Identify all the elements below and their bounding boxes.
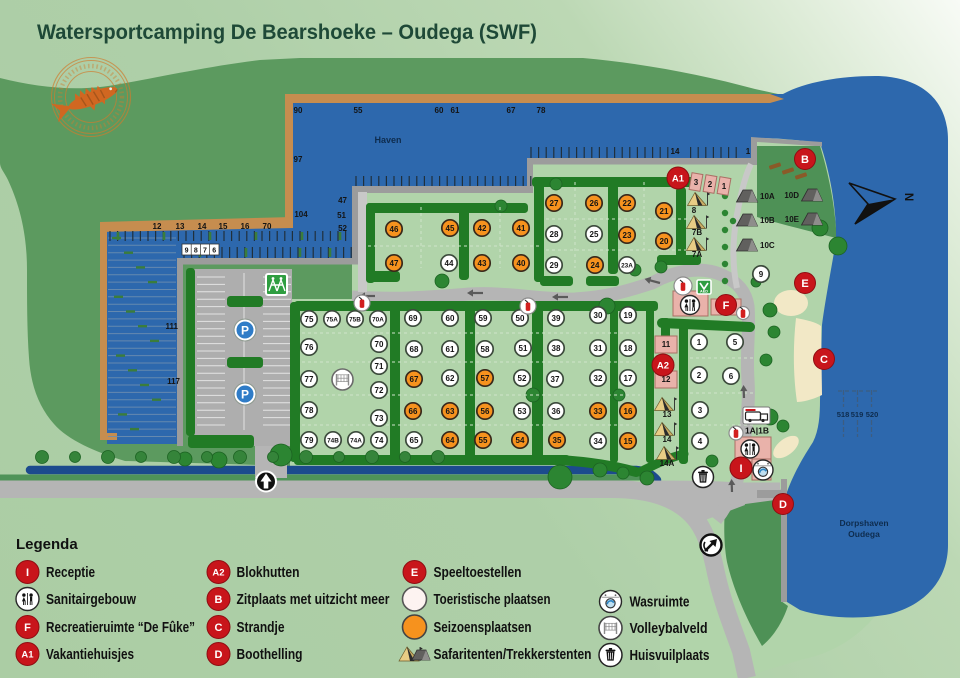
svg-text:61: 61 xyxy=(446,345,455,354)
svg-text:2: 2 xyxy=(697,371,702,380)
svg-text:P: P xyxy=(241,323,249,337)
svg-text:63: 63 xyxy=(446,407,455,416)
svg-text:F: F xyxy=(24,622,31,634)
svg-text:520: 520 xyxy=(866,410,879,419)
svg-text:67: 67 xyxy=(410,375,419,384)
svg-text:79: 79 xyxy=(305,436,314,445)
svg-text:52: 52 xyxy=(338,224,347,233)
svg-text:17: 17 xyxy=(624,374,633,383)
svg-text:38: 38 xyxy=(552,344,561,353)
svg-text:Safaritenten/Trekkerstenten: Safaritenten/Trekkerstenten xyxy=(434,646,592,663)
svg-text:24: 24 xyxy=(591,261,600,270)
svg-text:22: 22 xyxy=(623,199,632,208)
svg-text:20: 20 xyxy=(660,237,669,246)
svg-text:B: B xyxy=(215,594,223,606)
svg-text:41: 41 xyxy=(517,224,526,233)
svg-text:21: 21 xyxy=(660,207,669,216)
svg-text:32: 32 xyxy=(594,374,603,383)
svg-text:35: 35 xyxy=(553,436,562,445)
svg-text:Receptie: Receptie xyxy=(46,564,95,581)
svg-text:4: 4 xyxy=(698,437,703,446)
svg-text:71: 71 xyxy=(375,362,384,371)
svg-text:47: 47 xyxy=(338,196,347,205)
svg-text:56: 56 xyxy=(481,407,490,416)
svg-text:Sanitairgebouw: Sanitairgebouw xyxy=(46,591,136,608)
svg-text:Recreatieruimte “De Fûke”: Recreatieruimte “De Fûke” xyxy=(46,619,195,636)
svg-text:26: 26 xyxy=(590,199,599,208)
svg-text:104: 104 xyxy=(294,210,308,219)
svg-text:1: 1 xyxy=(697,338,702,347)
svg-text:78: 78 xyxy=(537,106,546,115)
svg-text:16: 16 xyxy=(241,222,250,231)
svg-text:D: D xyxy=(215,649,223,661)
svg-text:28: 28 xyxy=(550,230,559,239)
svg-text:55: 55 xyxy=(479,436,488,445)
svg-text:60: 60 xyxy=(446,314,455,323)
svg-text:10D: 10D xyxy=(784,191,799,200)
svg-text:Boothelling: Boothelling xyxy=(237,646,303,663)
svg-text:Volleybalveld: Volleybalveld xyxy=(630,620,708,637)
svg-text:18: 18 xyxy=(624,344,633,353)
svg-text:30: 30 xyxy=(594,311,603,320)
svg-text:3: 3 xyxy=(694,178,699,187)
svg-text:65: 65 xyxy=(410,436,419,445)
svg-text:23: 23 xyxy=(623,231,632,240)
svg-text:1A|1B: 1A|1B xyxy=(745,426,769,436)
svg-text:I: I xyxy=(26,567,29,579)
svg-text:E: E xyxy=(411,567,418,579)
svg-text:67: 67 xyxy=(507,106,516,115)
svg-text:C: C xyxy=(215,622,223,634)
svg-text:50: 50 xyxy=(516,314,525,323)
svg-text:76: 76 xyxy=(305,343,314,352)
svg-text:51: 51 xyxy=(337,211,346,220)
svg-text:Blokhutten: Blokhutten xyxy=(237,564,300,581)
svg-text:9: 9 xyxy=(759,270,764,279)
svg-text:Dorpshaven: Dorpshaven xyxy=(839,518,888,528)
svg-text:I: I xyxy=(739,463,742,475)
svg-text:47: 47 xyxy=(390,259,399,268)
svg-text:Zitplaats met uitzicht meer: Zitplaats met uitzicht meer xyxy=(237,591,390,608)
svg-text:Seizoensplaatsen: Seizoensplaatsen xyxy=(434,619,532,636)
svg-text:66: 66 xyxy=(409,407,418,416)
svg-text:31: 31 xyxy=(594,344,603,353)
svg-text:27: 27 xyxy=(550,199,559,208)
svg-text:11: 11 xyxy=(662,340,671,349)
svg-text:75: 75 xyxy=(305,315,314,324)
svg-text:6: 6 xyxy=(212,248,216,255)
svg-text:14A: 14A xyxy=(660,459,675,468)
svg-text:19: 19 xyxy=(624,311,633,320)
svg-text:1: 1 xyxy=(746,147,751,156)
svg-text:53: 53 xyxy=(518,407,527,416)
svg-text:F: F xyxy=(723,300,730,312)
svg-text:97: 97 xyxy=(294,155,303,164)
svg-text:7A: 7A xyxy=(692,250,702,259)
svg-text:15: 15 xyxy=(624,437,633,446)
svg-text:39: 39 xyxy=(552,314,561,323)
svg-text:15: 15 xyxy=(219,222,228,231)
svg-text:518: 518 xyxy=(837,410,850,419)
svg-text:14: 14 xyxy=(198,222,207,231)
svg-text:16: 16 xyxy=(624,407,633,416)
svg-text:10C: 10C xyxy=(760,241,775,250)
svg-text:A1: A1 xyxy=(21,649,34,660)
svg-text:111: 111 xyxy=(166,322,179,331)
svg-text:74A: 74A xyxy=(350,437,362,444)
svg-text:34: 34 xyxy=(594,437,603,446)
svg-text:Oudega: Oudega xyxy=(848,529,880,539)
svg-text:7B: 7B xyxy=(692,228,702,237)
svg-text:70: 70 xyxy=(375,340,384,349)
svg-text:70: 70 xyxy=(263,222,272,231)
svg-text:5: 5 xyxy=(733,338,738,347)
svg-text:2: 2 xyxy=(708,180,713,189)
svg-text:C: C xyxy=(820,354,828,366)
svg-text:7: 7 xyxy=(203,248,207,255)
svg-text:58: 58 xyxy=(481,345,490,354)
svg-text:72: 72 xyxy=(375,386,384,395)
svg-text:Watersportcamping De Bearshoek: Watersportcamping De Bearshoeke – Oudega… xyxy=(37,20,537,44)
svg-text:62: 62 xyxy=(446,374,455,383)
svg-text:52: 52 xyxy=(518,374,527,383)
svg-text:Vakantiehuisjes: Vakantiehuisjes xyxy=(46,646,134,663)
svg-text:A2: A2 xyxy=(657,360,669,371)
svg-text:75A: 75A xyxy=(326,316,338,323)
svg-text:64: 64 xyxy=(446,436,455,445)
svg-text:Legenda: Legenda xyxy=(16,536,78,553)
svg-text:3: 3 xyxy=(698,406,703,415)
svg-text:60: 60 xyxy=(435,106,444,115)
svg-text:AED: AED xyxy=(700,290,708,294)
svg-text:8: 8 xyxy=(692,206,697,215)
svg-text:Wasruimte: Wasruimte xyxy=(630,594,690,611)
svg-text:13: 13 xyxy=(663,410,672,419)
svg-text:P: P xyxy=(241,387,249,401)
svg-text:43: 43 xyxy=(478,259,487,268)
svg-text:12: 12 xyxy=(153,222,162,231)
svg-text:23A: 23A xyxy=(621,262,633,269)
svg-text:51: 51 xyxy=(519,344,528,353)
svg-text:74: 74 xyxy=(375,436,384,445)
svg-text:42: 42 xyxy=(478,224,487,233)
svg-text:61: 61 xyxy=(451,106,460,115)
svg-text:Haven: Haven xyxy=(374,135,401,145)
svg-text:6: 6 xyxy=(729,372,734,381)
svg-text:77: 77 xyxy=(305,375,314,384)
svg-text:73: 73 xyxy=(375,414,384,423)
svg-text:1: 1 xyxy=(722,182,727,191)
svg-text:45: 45 xyxy=(446,224,455,233)
svg-text:70A: 70A xyxy=(372,316,384,323)
svg-text:A1: A1 xyxy=(672,173,685,184)
svg-text:14: 14 xyxy=(663,435,672,444)
svg-text:14: 14 xyxy=(671,147,680,156)
svg-text:Strandje: Strandje xyxy=(237,619,285,636)
svg-text:55: 55 xyxy=(354,106,363,115)
svg-text:57: 57 xyxy=(481,374,490,383)
svg-text:33: 33 xyxy=(594,407,603,416)
svg-text:519: 519 xyxy=(851,410,864,419)
svg-text:B: B xyxy=(801,154,809,166)
svg-text:78: 78 xyxy=(305,406,314,415)
svg-text:D: D xyxy=(779,499,787,511)
svg-text:37: 37 xyxy=(551,375,560,384)
svg-text:E: E xyxy=(801,278,808,290)
svg-text:90: 90 xyxy=(294,106,303,115)
svg-text:29: 29 xyxy=(550,261,559,270)
svg-text:Huisvuilplaats: Huisvuilplaats xyxy=(630,647,710,664)
svg-text:54: 54 xyxy=(516,436,525,445)
svg-text:A2: A2 xyxy=(212,567,224,578)
svg-text:10A: 10A xyxy=(760,192,775,201)
svg-text:68: 68 xyxy=(410,345,419,354)
svg-text:117: 117 xyxy=(167,377,180,386)
svg-text:9: 9 xyxy=(185,248,189,255)
svg-text:75B: 75B xyxy=(349,316,361,323)
svg-text:Speeltoestellen: Speeltoestellen xyxy=(434,564,522,581)
svg-text:10E: 10E xyxy=(785,215,800,224)
svg-text:74B: 74B xyxy=(327,437,339,444)
svg-text:69: 69 xyxy=(409,314,418,323)
svg-text:44: 44 xyxy=(445,259,454,268)
svg-text:36: 36 xyxy=(552,407,561,416)
svg-text:10B: 10B xyxy=(760,216,775,225)
svg-text:13: 13 xyxy=(176,222,185,231)
svg-text:59: 59 xyxy=(479,314,488,323)
svg-text:46: 46 xyxy=(390,225,399,234)
svg-text:N: N xyxy=(902,193,914,201)
svg-text:Toeristische plaatsen: Toeristische plaatsen xyxy=(434,591,551,608)
svg-text:8: 8 xyxy=(194,248,198,255)
svg-text:25: 25 xyxy=(590,230,599,239)
svg-text:40: 40 xyxy=(517,259,526,268)
